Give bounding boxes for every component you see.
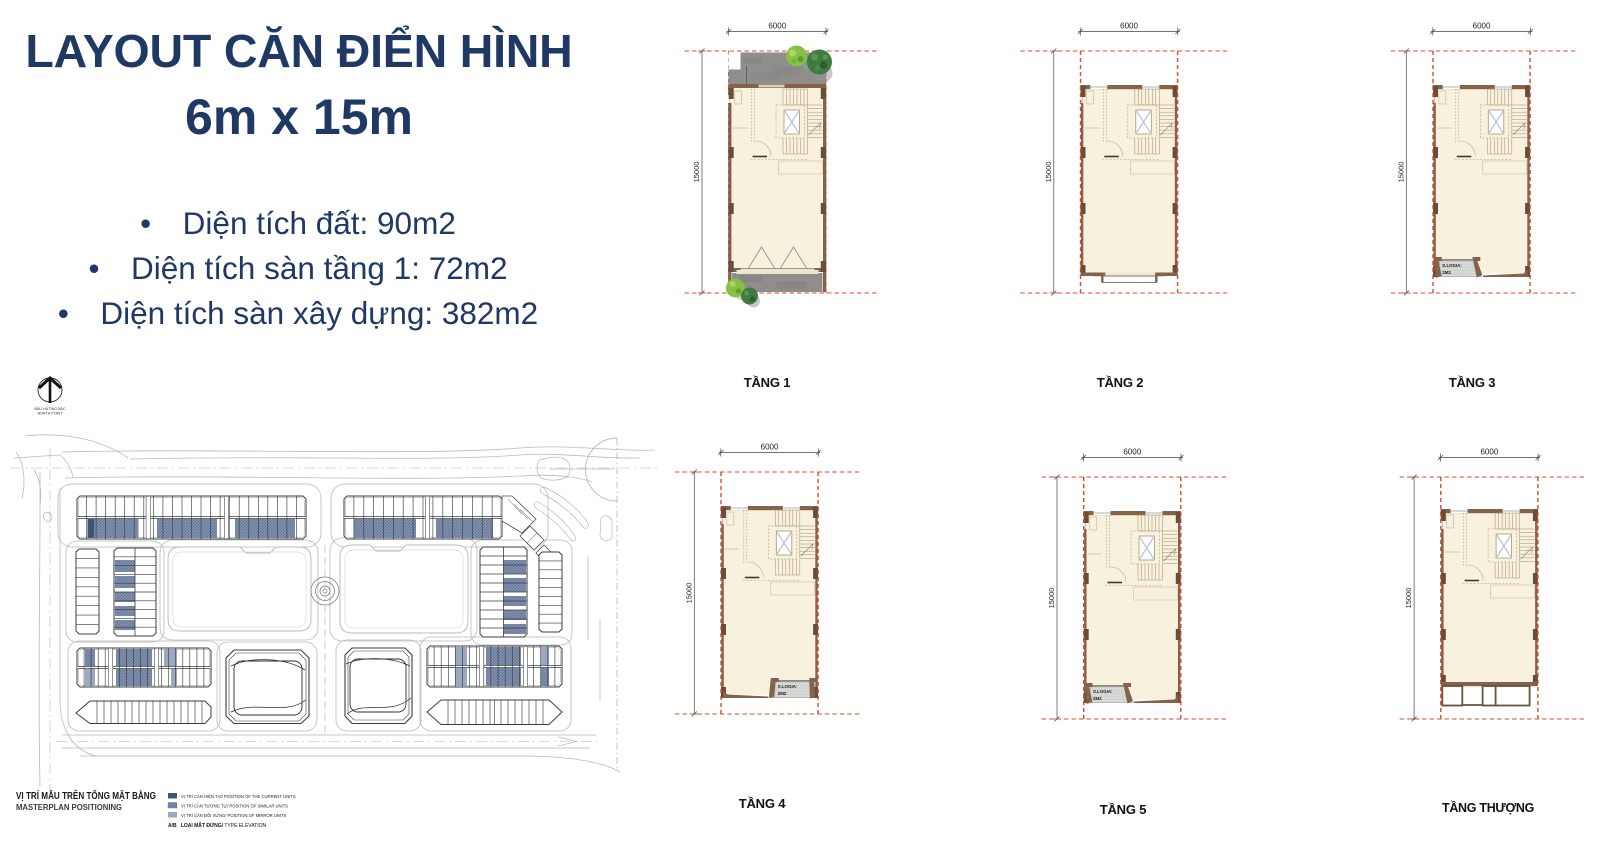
svg-text:ĐẦU HƯỚNG BẮC: ĐẦU HƯỚNG BẮC [34, 406, 66, 411]
svg-text:NORTH POINT: NORTH POINT [38, 412, 63, 416]
svg-text:6000: 6000 [1123, 448, 1141, 457]
svg-text:2M2: 2M2 [1442, 270, 1451, 275]
svg-text:6000: 6000 [1480, 448, 1498, 457]
svg-text:2M2: 2M2 [1093, 696, 1102, 701]
svg-text:VỊ TRÍ CĂN HIỆN TẠI/ POSITION: VỊ TRÍ CĂN HIỆN TẠI/ POSITION OF THE CUR… [181, 794, 296, 799]
svg-text:15000: 15000 [692, 162, 701, 183]
svg-text:S.LOGIA:: S.LOGIA: [1093, 689, 1113, 694]
svg-text:VỊ TRÍ CĂN ĐỐI XỨNG/ POSITION: VỊ TRÍ CĂN ĐỐI XỨNG/ POSITION OF MIRROR … [181, 813, 287, 818]
svg-text:15000: 15000 [1396, 162, 1405, 183]
svg-text:6000: 6000 [1120, 22, 1138, 31]
svg-text:15000: 15000 [1404, 588, 1413, 609]
svg-text:A/B LOẠI MẶT ĐỨNG/ TYPE ELEV: A/B LOẠI MẶT ĐỨNG/ TYPE ELEVATION [168, 822, 267, 829]
svg-text:15000: 15000 [684, 583, 693, 604]
svg-text:6000: 6000 [768, 22, 786, 31]
svg-text:2M2: 2M2 [778, 691, 787, 696]
svg-text:6000: 6000 [761, 443, 779, 452]
svg-text:S.LOGIA:: S.LOGIA: [778, 684, 798, 689]
svg-text:15000: 15000 [1044, 162, 1053, 183]
svg-text:S.LOGIA:: S.LOGIA: [1442, 263, 1462, 268]
svg-text:VỊ TRÍ CĂN TƯƠNG TỰ/ POSITION: VỊ TRÍ CĂN TƯƠNG TỰ/ POSITION OF SIMILAR… [181, 804, 288, 809]
svg-text:6000: 6000 [1473, 22, 1491, 31]
svg-text:MASTERPLAN POSITIONING: MASTERPLAN POSITIONING [16, 803, 122, 812]
svg-text:VỊ TRÍ MẪU TRÊN TỔNG MẶT BẰNG: VỊ TRÍ MẪU TRÊN TỔNG MẶT BẰNG [16, 789, 156, 802]
svg-text:15000: 15000 [1047, 588, 1056, 609]
